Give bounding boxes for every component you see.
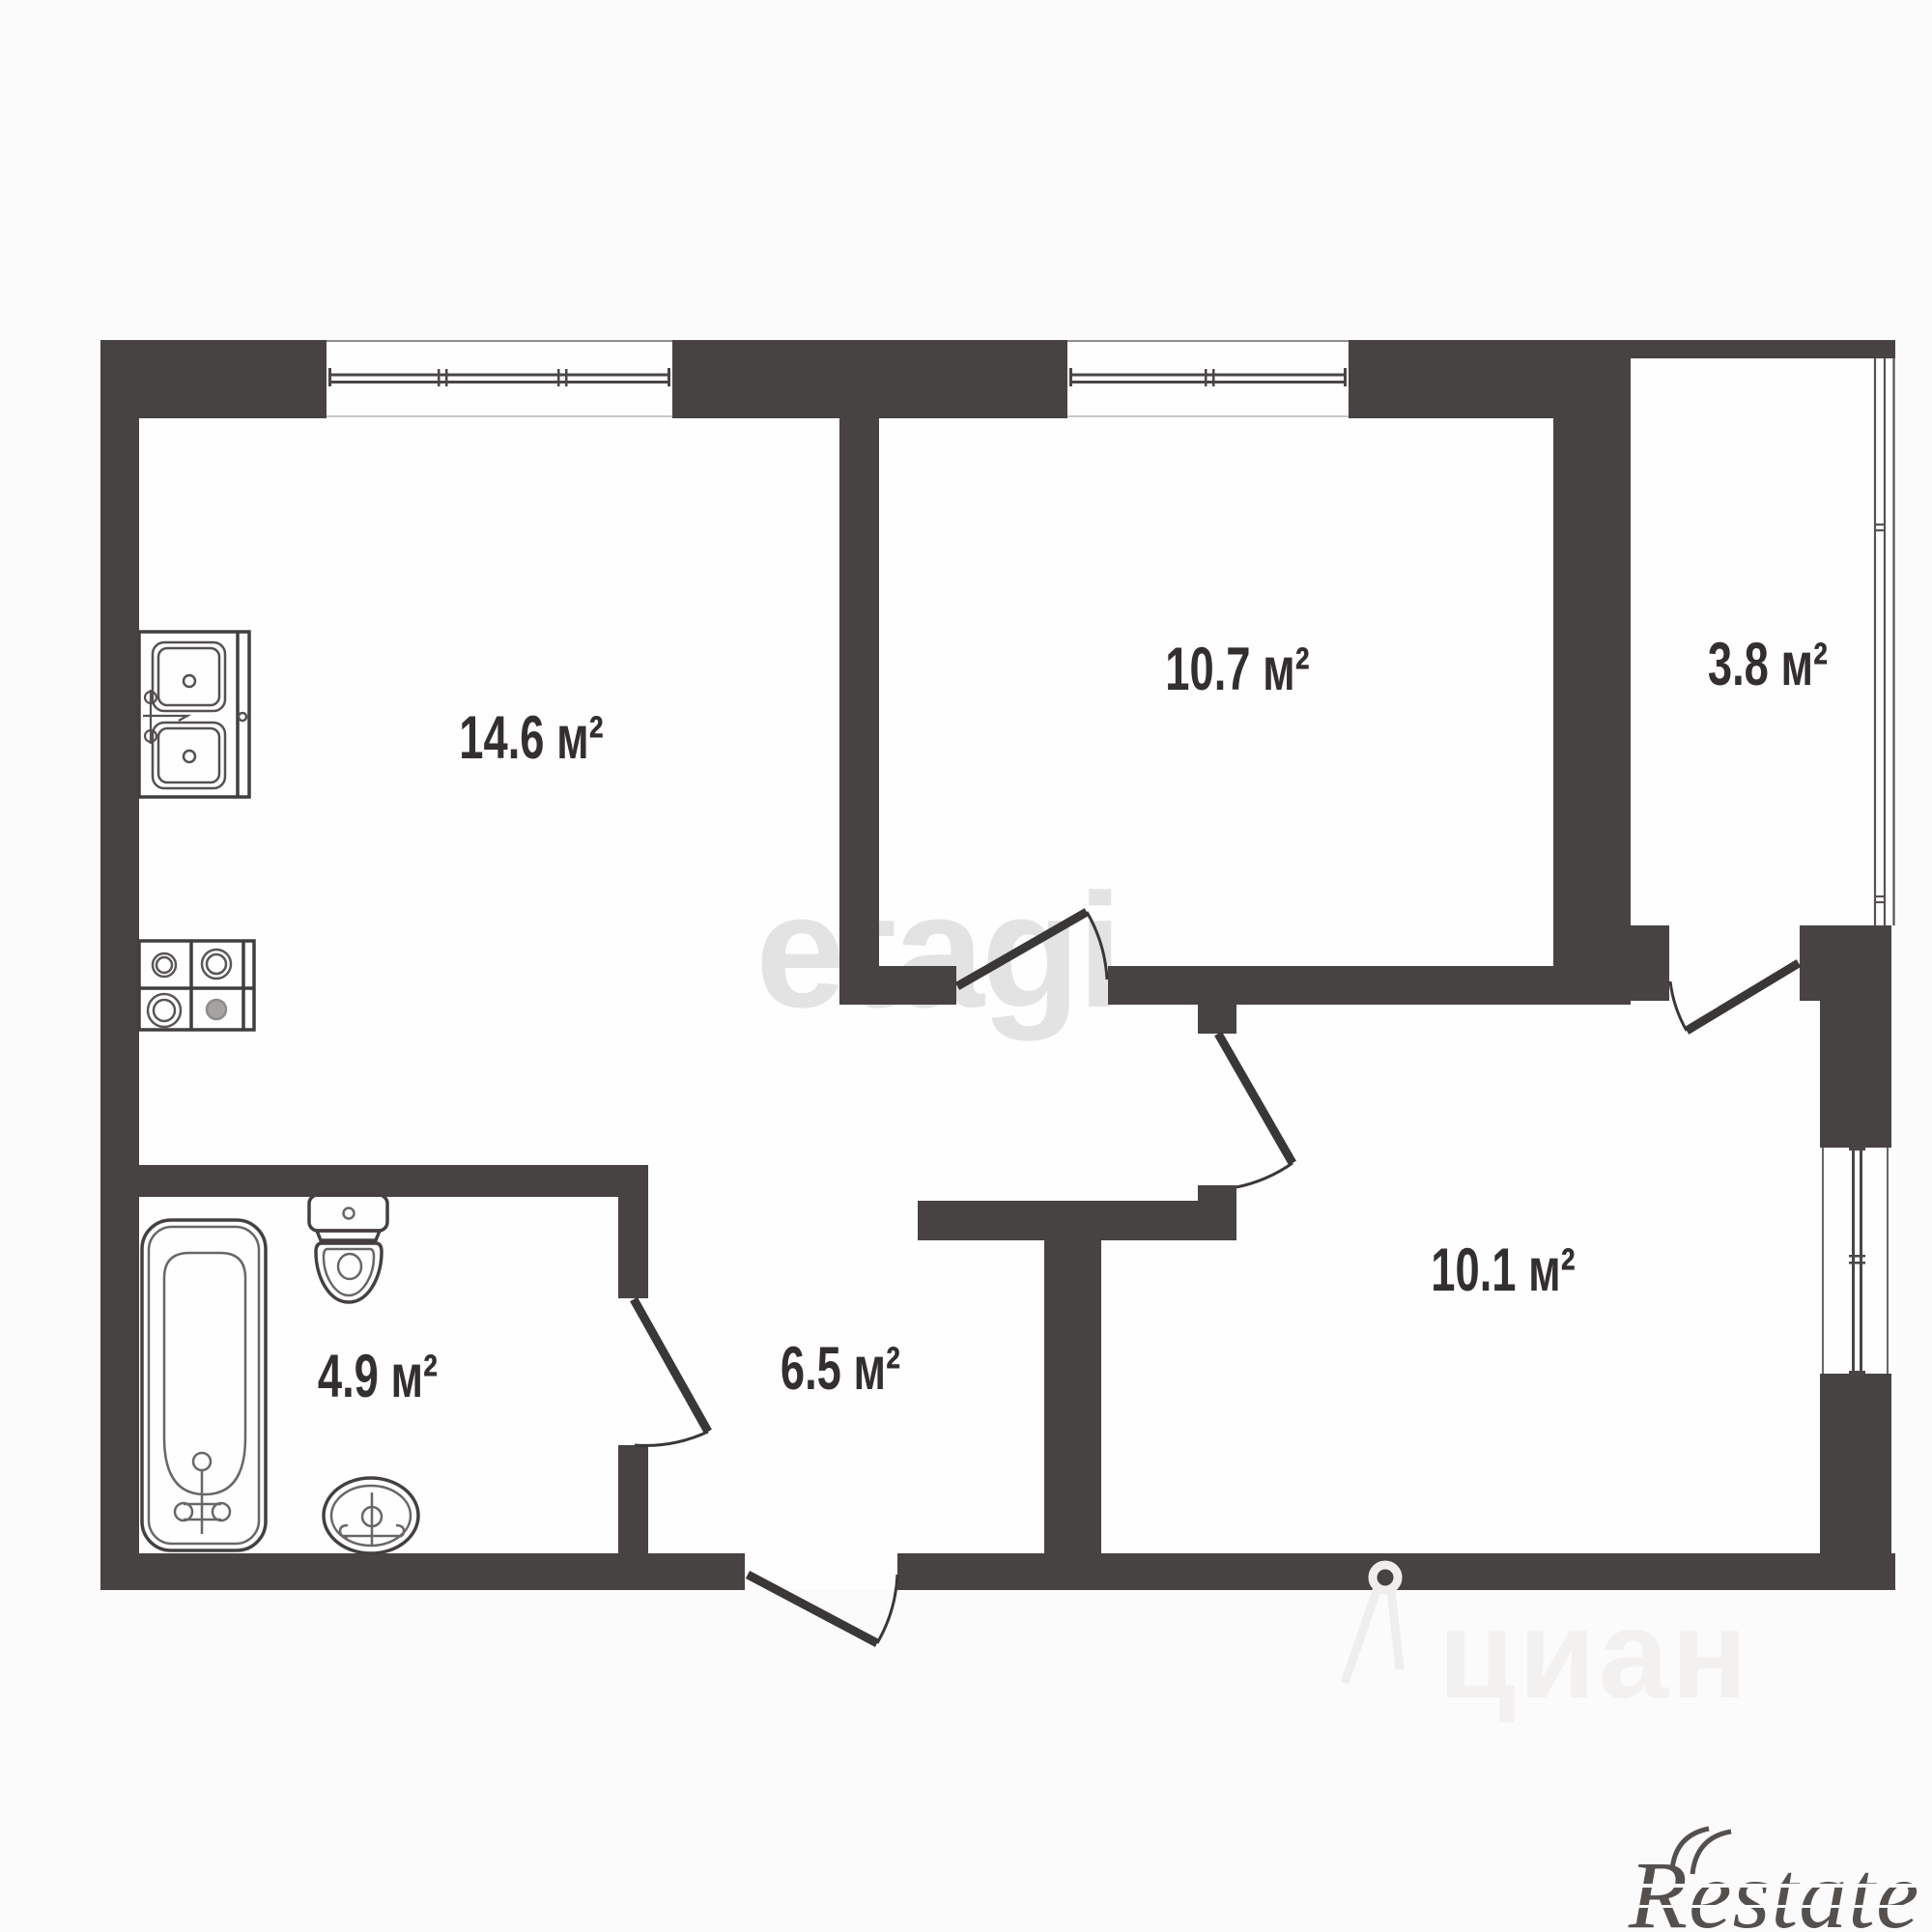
svg-text:6.5 м²: 6.5 м² (781, 1334, 900, 1403)
svg-text:etagi: etagi (755, 860, 1120, 1041)
svg-text:4.9 м²: 4.9 м² (318, 1342, 438, 1410)
svg-text:циан: циан (1438, 1583, 1750, 1724)
svg-text:10.7 м²: 10.7 м² (1165, 635, 1310, 703)
svg-text:10.1 м²: 10.1 м² (1431, 1236, 1576, 1304)
svg-text:3.8 м²: 3.8 м² (1708, 630, 1828, 698)
svg-text:14.6 м²: 14.6 м² (459, 703, 604, 772)
